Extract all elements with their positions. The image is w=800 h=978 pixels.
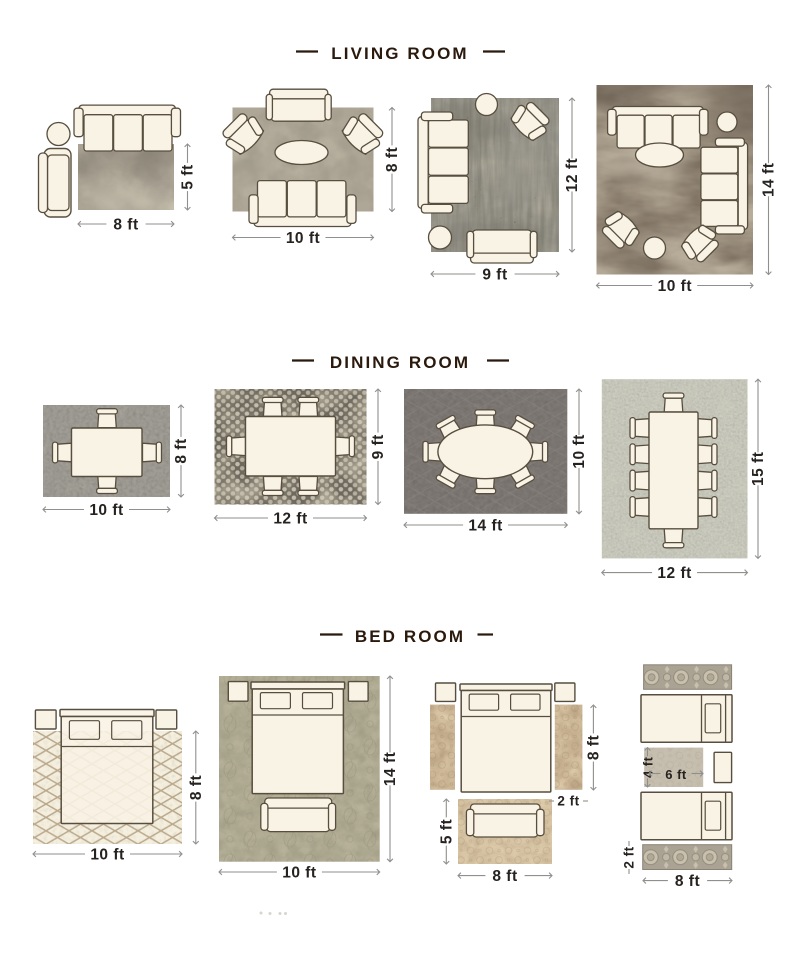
svg-text:8 ft: 8 ft <box>492 868 517 885</box>
svg-text:14 ft: 14 ft <box>761 163 778 197</box>
svg-text:14 ft: 14 ft <box>468 518 502 535</box>
svg-text:10 ft: 10 ft <box>571 434 588 468</box>
svg-text:12 ft: 12 ft <box>273 511 307 528</box>
svg-text:6 ft: 6 ft <box>665 767 687 782</box>
svg-text:DINING ROOM: DINING ROOM <box>330 353 470 372</box>
svg-text:9 ft: 9 ft <box>482 267 507 284</box>
svg-text:5 ft: 5 ft <box>439 819 456 844</box>
svg-text:8 ft: 8 ft <box>586 735 603 760</box>
svg-text:10 ft: 10 ft <box>90 847 124 864</box>
svg-text:5 ft: 5 ft <box>180 164 197 189</box>
svg-text:12 ft: 12 ft <box>564 158 581 192</box>
svg-text:2 ft: 2 ft <box>622 846 637 868</box>
svg-text:8 ft: 8 ft <box>188 775 205 800</box>
svg-text:BED ROOM: BED ROOM <box>355 627 465 646</box>
svg-text:8 ft: 8 ft <box>675 873 700 890</box>
svg-text:14 ft: 14 ft <box>382 752 399 786</box>
svg-text:10 ft: 10 ft <box>658 278 692 295</box>
svg-text:10 ft: 10 ft <box>89 502 123 519</box>
svg-text:8 ft: 8 ft <box>113 217 138 234</box>
svg-text:10 ft: 10 ft <box>282 865 316 882</box>
svg-text:4 ft: 4 ft <box>641 756 656 778</box>
svg-text:12 ft: 12 ft <box>657 565 691 582</box>
svg-text:15 ft: 15 ft <box>750 452 767 486</box>
svg-text:2 ft: 2 ft <box>557 794 579 809</box>
svg-text:9 ft: 9 ft <box>370 434 387 459</box>
svg-text:LIVING ROOM: LIVING ROOM <box>331 44 468 63</box>
svg-text:8 ft: 8 ft <box>384 147 401 172</box>
svg-text:10 ft: 10 ft <box>286 230 320 247</box>
svg-text:8 ft: 8 ft <box>173 438 190 463</box>
